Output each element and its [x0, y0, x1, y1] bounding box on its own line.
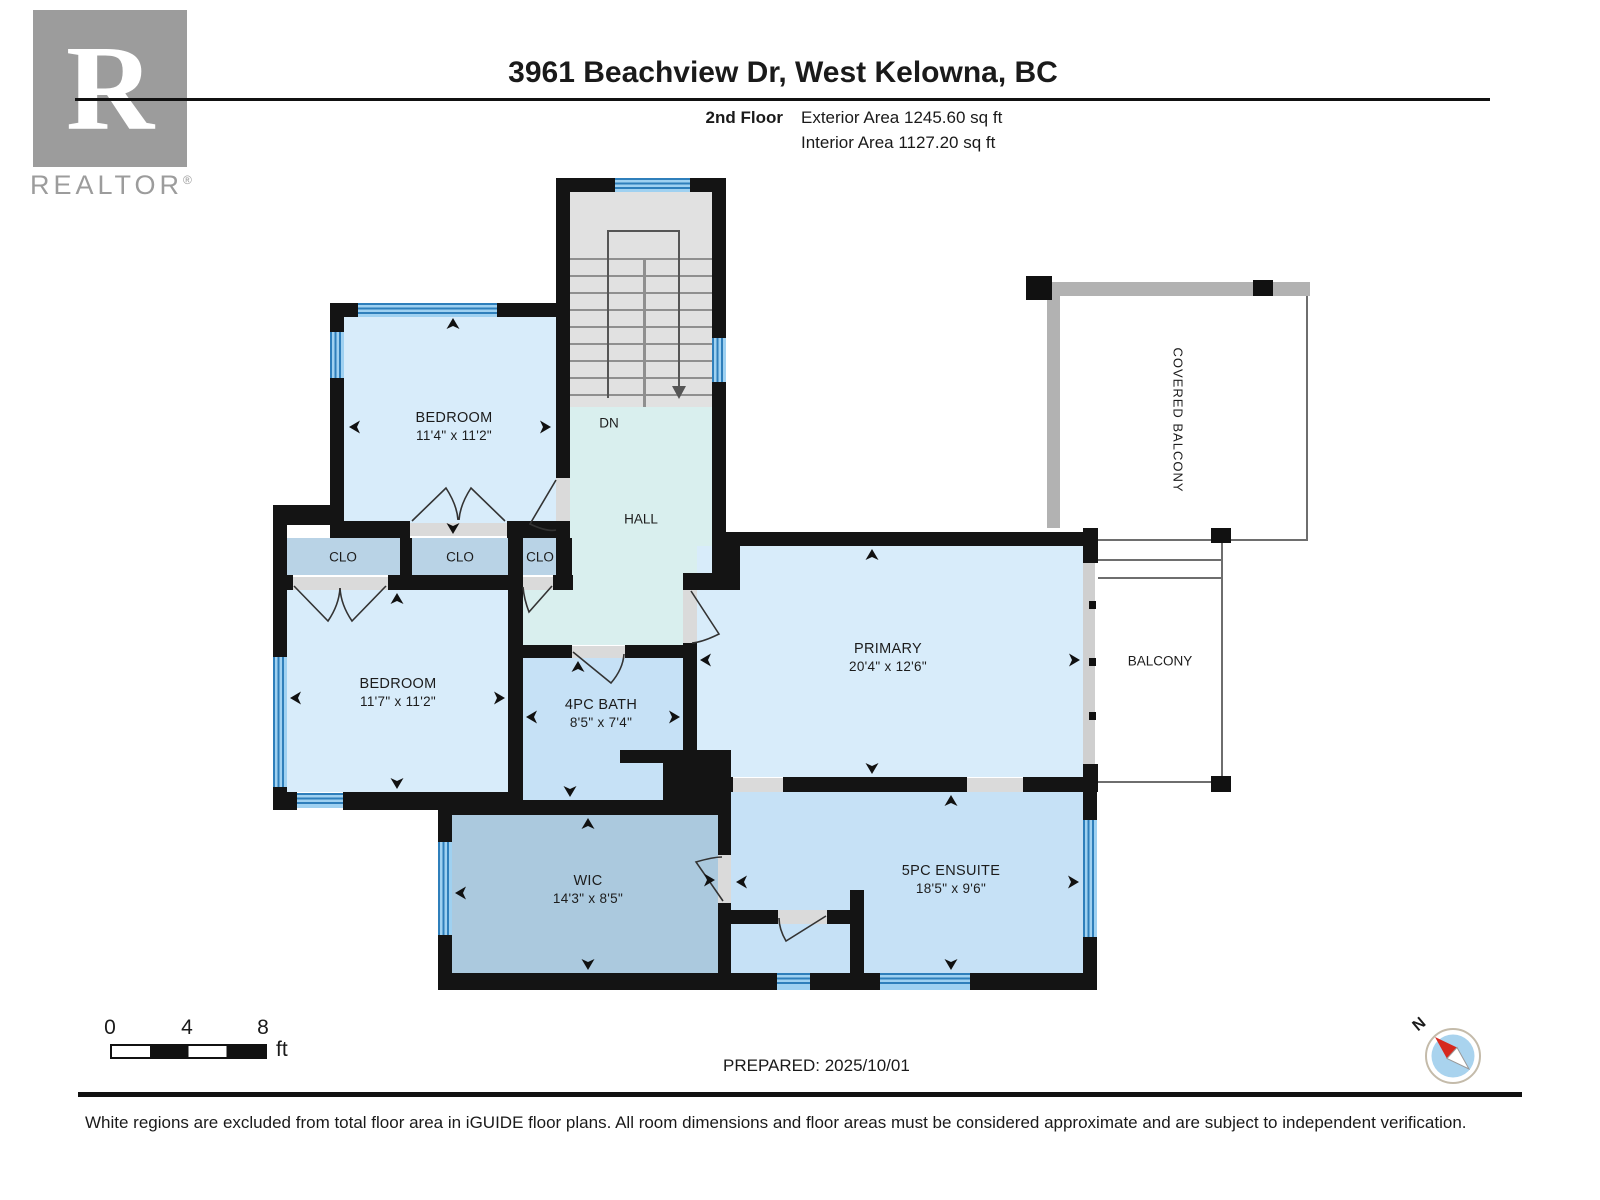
room-label-wic: WIC 14'3" x 8'5" — [553, 873, 623, 907]
window — [438, 842, 452, 935]
compass-face — [1432, 1035, 1475, 1078]
room-name: WIC — [553, 873, 623, 891]
stair-divider — [643, 258, 646, 407]
wall — [553, 575, 573, 590]
realtor-brand-text: REALTOR — [30, 170, 183, 200]
balcony-edge — [1221, 539, 1223, 783]
door-opening — [683, 590, 697, 643]
slider-tick — [1089, 712, 1096, 720]
window — [615, 178, 690, 192]
footer-divider — [78, 1092, 1522, 1097]
balcony-edge — [1098, 539, 1308, 541]
slider-tick — [1089, 601, 1096, 609]
wall — [783, 777, 967, 792]
scale-tick-0: 0 — [104, 1016, 116, 1040]
room-label-closet3: CLO — [526, 550, 554, 565]
disclaimer-text: White regions are excluded from total fl… — [85, 1113, 1467, 1133]
window — [880, 973, 970, 990]
covered-balcony-post — [1253, 280, 1273, 296]
wall — [273, 792, 297, 810]
covered-balcony-wall — [1047, 296, 1060, 528]
wall — [438, 973, 777, 990]
room-name: BEDROOM — [359, 676, 436, 694]
header-divider — [75, 98, 1490, 101]
covered-balcony-post — [1026, 276, 1052, 300]
wall — [683, 645, 697, 750]
wall — [388, 575, 523, 590]
hall-fill — [523, 590, 570, 645]
door-opening — [410, 523, 507, 536]
compass-north-label: N — [1410, 1014, 1430, 1035]
room-dims: 8'5" x 7'4" — [565, 715, 637, 731]
scale-tick-4: 4 — [181, 1016, 193, 1040]
balcony-post — [1211, 528, 1231, 543]
wall — [1083, 792, 1097, 820]
page-title: 3961 Beachview Dr, West Kelowna, BC — [508, 56, 1058, 90]
realtor-wordmark: REALTOR® — [30, 170, 192, 201]
door-opening — [778, 910, 827, 924]
room-label-bath: 4PC BATH 8'5" x 7'4" — [565, 697, 637, 731]
room-label-balcony: BALCONY — [1128, 654, 1193, 669]
stair-treads — [570, 258, 712, 407]
room-name: PRIMARY — [849, 641, 927, 659]
wall — [438, 800, 731, 815]
wall — [620, 750, 663, 763]
room-dims: 14'3" x 8'5" — [553, 891, 623, 907]
door-opening — [572, 646, 625, 658]
wall — [330, 378, 344, 523]
slider-tick — [1089, 658, 1096, 666]
window — [330, 332, 344, 378]
door-opening — [523, 577, 553, 590]
room-dims: 11'7" x 11'2" — [359, 694, 436, 710]
room-name: BEDROOM — [415, 410, 492, 428]
compass — [1426, 1029, 1480, 1083]
window — [1083, 820, 1097, 937]
wall — [683, 573, 740, 590]
door-opening — [967, 778, 1023, 792]
room-label-primary: PRIMARY 20'4" x 12'6" — [849, 641, 927, 675]
wall — [718, 903, 731, 973]
window — [297, 793, 343, 808]
door-opening — [733, 778, 783, 792]
wall — [683, 643, 697, 658]
hall-fill — [570, 407, 712, 573]
room-label-closet2: CLO — [446, 550, 474, 565]
room-name: 5PC ENSUITE — [902, 863, 1000, 881]
wall — [722, 532, 1098, 546]
exterior-area: Exterior Area 1245.60 sq ft — [801, 108, 1002, 128]
room-label-bedroom-left: BEDROOM 11'7" x 11'2" — [359, 676, 436, 710]
registered-symbol: ® — [183, 173, 192, 187]
window — [777, 973, 810, 990]
door-opening — [293, 577, 388, 590]
wall — [695, 777, 733, 792]
stairs-dn-label: DN — [599, 416, 619, 431]
window — [358, 303, 497, 317]
realtor-logo: R — [33, 10, 187, 167]
wall — [731, 910, 778, 924]
interior-area: Interior Area 1127.20 sq ft — [801, 133, 995, 153]
scale-tick-8: 8 — [257, 1016, 269, 1040]
window — [273, 657, 287, 787]
room-label-bedroom-top: BEDROOM 11'4" x 11'2" — [415, 410, 492, 444]
room-dims: 11'4" x 11'2" — [415, 428, 492, 444]
wall — [330, 303, 344, 332]
balcony-edge — [1098, 781, 1223, 783]
wall — [718, 815, 731, 855]
wall — [508, 645, 572, 658]
wall — [1023, 777, 1098, 792]
prepared-date: PREPARED: 2025/10/01 — [723, 1056, 910, 1076]
wall — [827, 910, 850, 924]
compass-needle-south — [1447, 1048, 1469, 1070]
room-dims: 18'5" x 9'6" — [902, 881, 1000, 897]
wall — [556, 178, 570, 478]
covered-balcony-edge — [1306, 296, 1308, 541]
room-label-ensuite: 5PC ENSUITE 18'5" x 9'6" — [902, 863, 1000, 897]
wall — [508, 538, 523, 810]
room-label-covered-balcony: COVERED BALCONY — [1171, 347, 1186, 492]
room-name: 4PC BATH — [565, 697, 637, 715]
balcony-post — [1211, 776, 1231, 792]
wall — [970, 973, 1097, 990]
wall — [850, 890, 864, 973]
wall — [330, 521, 410, 538]
door-opening — [718, 855, 731, 903]
scale-bar — [110, 1044, 267, 1059]
floor-label: 2nd Floor — [600, 108, 783, 128]
hall-fill — [570, 573, 683, 645]
floorplan-page: R REALTOR® 3961 Beachview Dr, West Kelow… — [0, 0, 1600, 1200]
scale-unit: ft — [276, 1038, 288, 1062]
room-dims: 20'4" x 12'6" — [849, 659, 927, 675]
wall — [1083, 528, 1098, 563]
balcony-railing — [1098, 559, 1223, 561]
room-label-hall: HALL — [624, 512, 658, 527]
wall — [400, 538, 412, 575]
wall — [507, 521, 570, 538]
room-label-closet1: CLO — [329, 550, 357, 565]
wall — [712, 178, 726, 338]
wall — [810, 973, 880, 990]
wall — [273, 575, 293, 590]
compass-needle-north — [1435, 1037, 1457, 1059]
wall — [497, 303, 570, 317]
compass-ring — [1426, 1029, 1480, 1083]
window — [712, 338, 726, 382]
balcony-railing — [1098, 577, 1223, 579]
realtor-logo-letter: R — [66, 28, 154, 150]
wall — [712, 382, 726, 532]
